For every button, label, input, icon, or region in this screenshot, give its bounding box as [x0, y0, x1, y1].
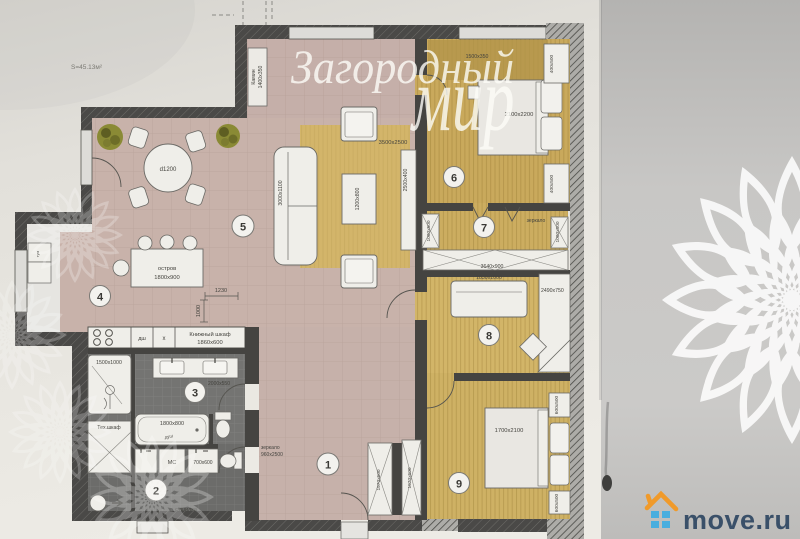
svg-text:S=45.13м²: S=45.13м²	[71, 64, 103, 71]
svg-text:1970х600: 1970х600	[376, 469, 382, 490]
svg-text:700х600: 700х600	[193, 460, 212, 466]
svg-text:4: 4	[97, 292, 104, 304]
svg-text:дш: дш	[138, 336, 146, 342]
svg-text:1800х900: 1800х900	[154, 275, 179, 281]
svg-text:1800х800: 1800х800	[160, 421, 184, 427]
svg-text:1200х800: 1200х800	[355, 187, 361, 210]
svg-text:зеркало: зеркало	[261, 445, 280, 451]
svg-text:9: 9	[456, 479, 462, 491]
svg-text:1970х600: 1970х600	[407, 467, 413, 488]
svg-text:1500х1000: 1500х1000	[96, 360, 122, 366]
svg-text:600х500: 600х500	[554, 395, 560, 414]
svg-text:1400х350: 1400х350	[258, 65, 264, 88]
svg-text:move.ru: move.ru	[683, 505, 792, 535]
svg-text:х: х	[163, 336, 166, 342]
svg-text:600х500: 600х500	[554, 493, 560, 512]
svg-text:1000: 1000	[196, 305, 202, 317]
svg-text:1: 1	[325, 460, 331, 472]
svg-text:400х500: 400х500	[549, 174, 555, 193]
svg-text:8: 8	[486, 331, 492, 343]
svg-text:Книжный шкаф: Книжный шкаф	[189, 331, 230, 338]
svg-text:остров: остров	[158, 266, 176, 272]
svg-text:d1200: d1200	[160, 167, 177, 173]
svg-text:6: 6	[451, 173, 457, 185]
svg-text:Камин: Камин	[251, 69, 257, 84]
svg-text:1700х2100: 1700х2100	[495, 428, 524, 434]
svg-text:3640х900: 3640х900	[481, 264, 504, 270]
svg-text:1000х500: 1000х500	[426, 220, 432, 241]
svg-text:2500х400: 2500х400	[403, 168, 409, 191]
svg-text:1830х1000: 1830х1000	[476, 275, 502, 281]
svg-text:2490х750: 2490х750	[541, 288, 564, 294]
svg-text:5: 5	[240, 222, 246, 234]
svg-text:3000х1100: 3000х1100	[278, 180, 284, 205]
svg-text:1230: 1230	[215, 288, 227, 294]
svg-text:3500х2500: 3500х2500	[379, 140, 408, 146]
svg-text:зеркало: зеркало	[527, 218, 546, 224]
svg-text:3: 3	[192, 388, 198, 400]
svg-text:960х2500: 960х2500	[261, 452, 283, 458]
svg-text:7: 7	[481, 223, 487, 235]
svg-text:мир: мир	[410, 49, 515, 151]
svg-text:1000х500: 1000х500	[555, 221, 561, 242]
svg-text:1860х600: 1860х600	[197, 340, 222, 346]
svg-text:2000х550: 2000х550	[208, 381, 230, 387]
svg-text:400х500: 400х500	[549, 54, 555, 73]
